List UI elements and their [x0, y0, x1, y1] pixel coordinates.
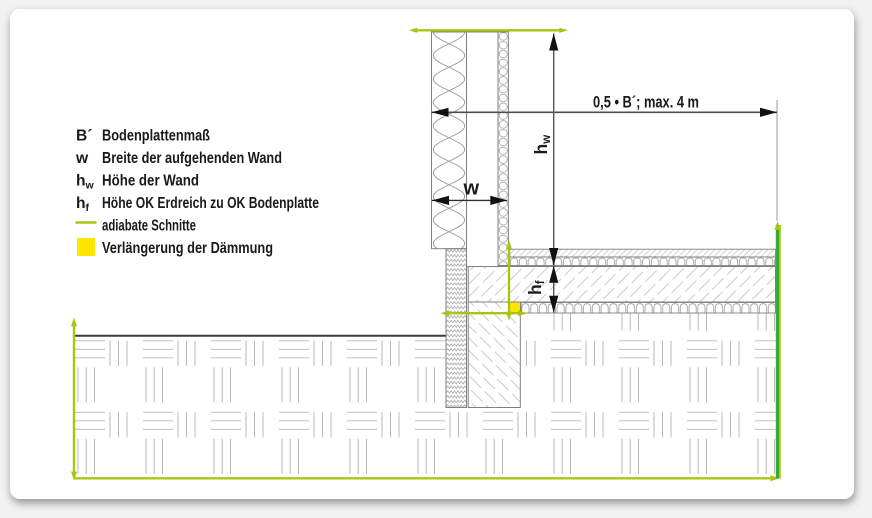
svg-text:0,5 • B´; max. 4 m: 0,5 • B´; max. 4 m — [593, 92, 699, 111]
svg-text:B´: B´ — [76, 128, 92, 145]
svg-text:w: w — [463, 178, 480, 200]
svg-text:w: w — [75, 150, 89, 167]
svg-text:Höhe OK Erdreich zu OK Bodenpl: Höhe OK Erdreich zu OK Bodenplatte — [102, 195, 319, 212]
svg-text:Breite der aufgehenden Wand: Breite der aufgehenden Wand — [102, 150, 282, 167]
svg-text:Höhe der Wand: Höhe der Wand — [102, 173, 199, 190]
svg-text:adiabate Schnitte: adiabate Schnitte — [102, 218, 196, 235]
svg-text:Verlängerung der Dämmung: Verlängerung der Dämmung — [102, 240, 273, 257]
svg-text:Bodenplattenmaß: Bodenplattenmaß — [102, 128, 210, 145]
